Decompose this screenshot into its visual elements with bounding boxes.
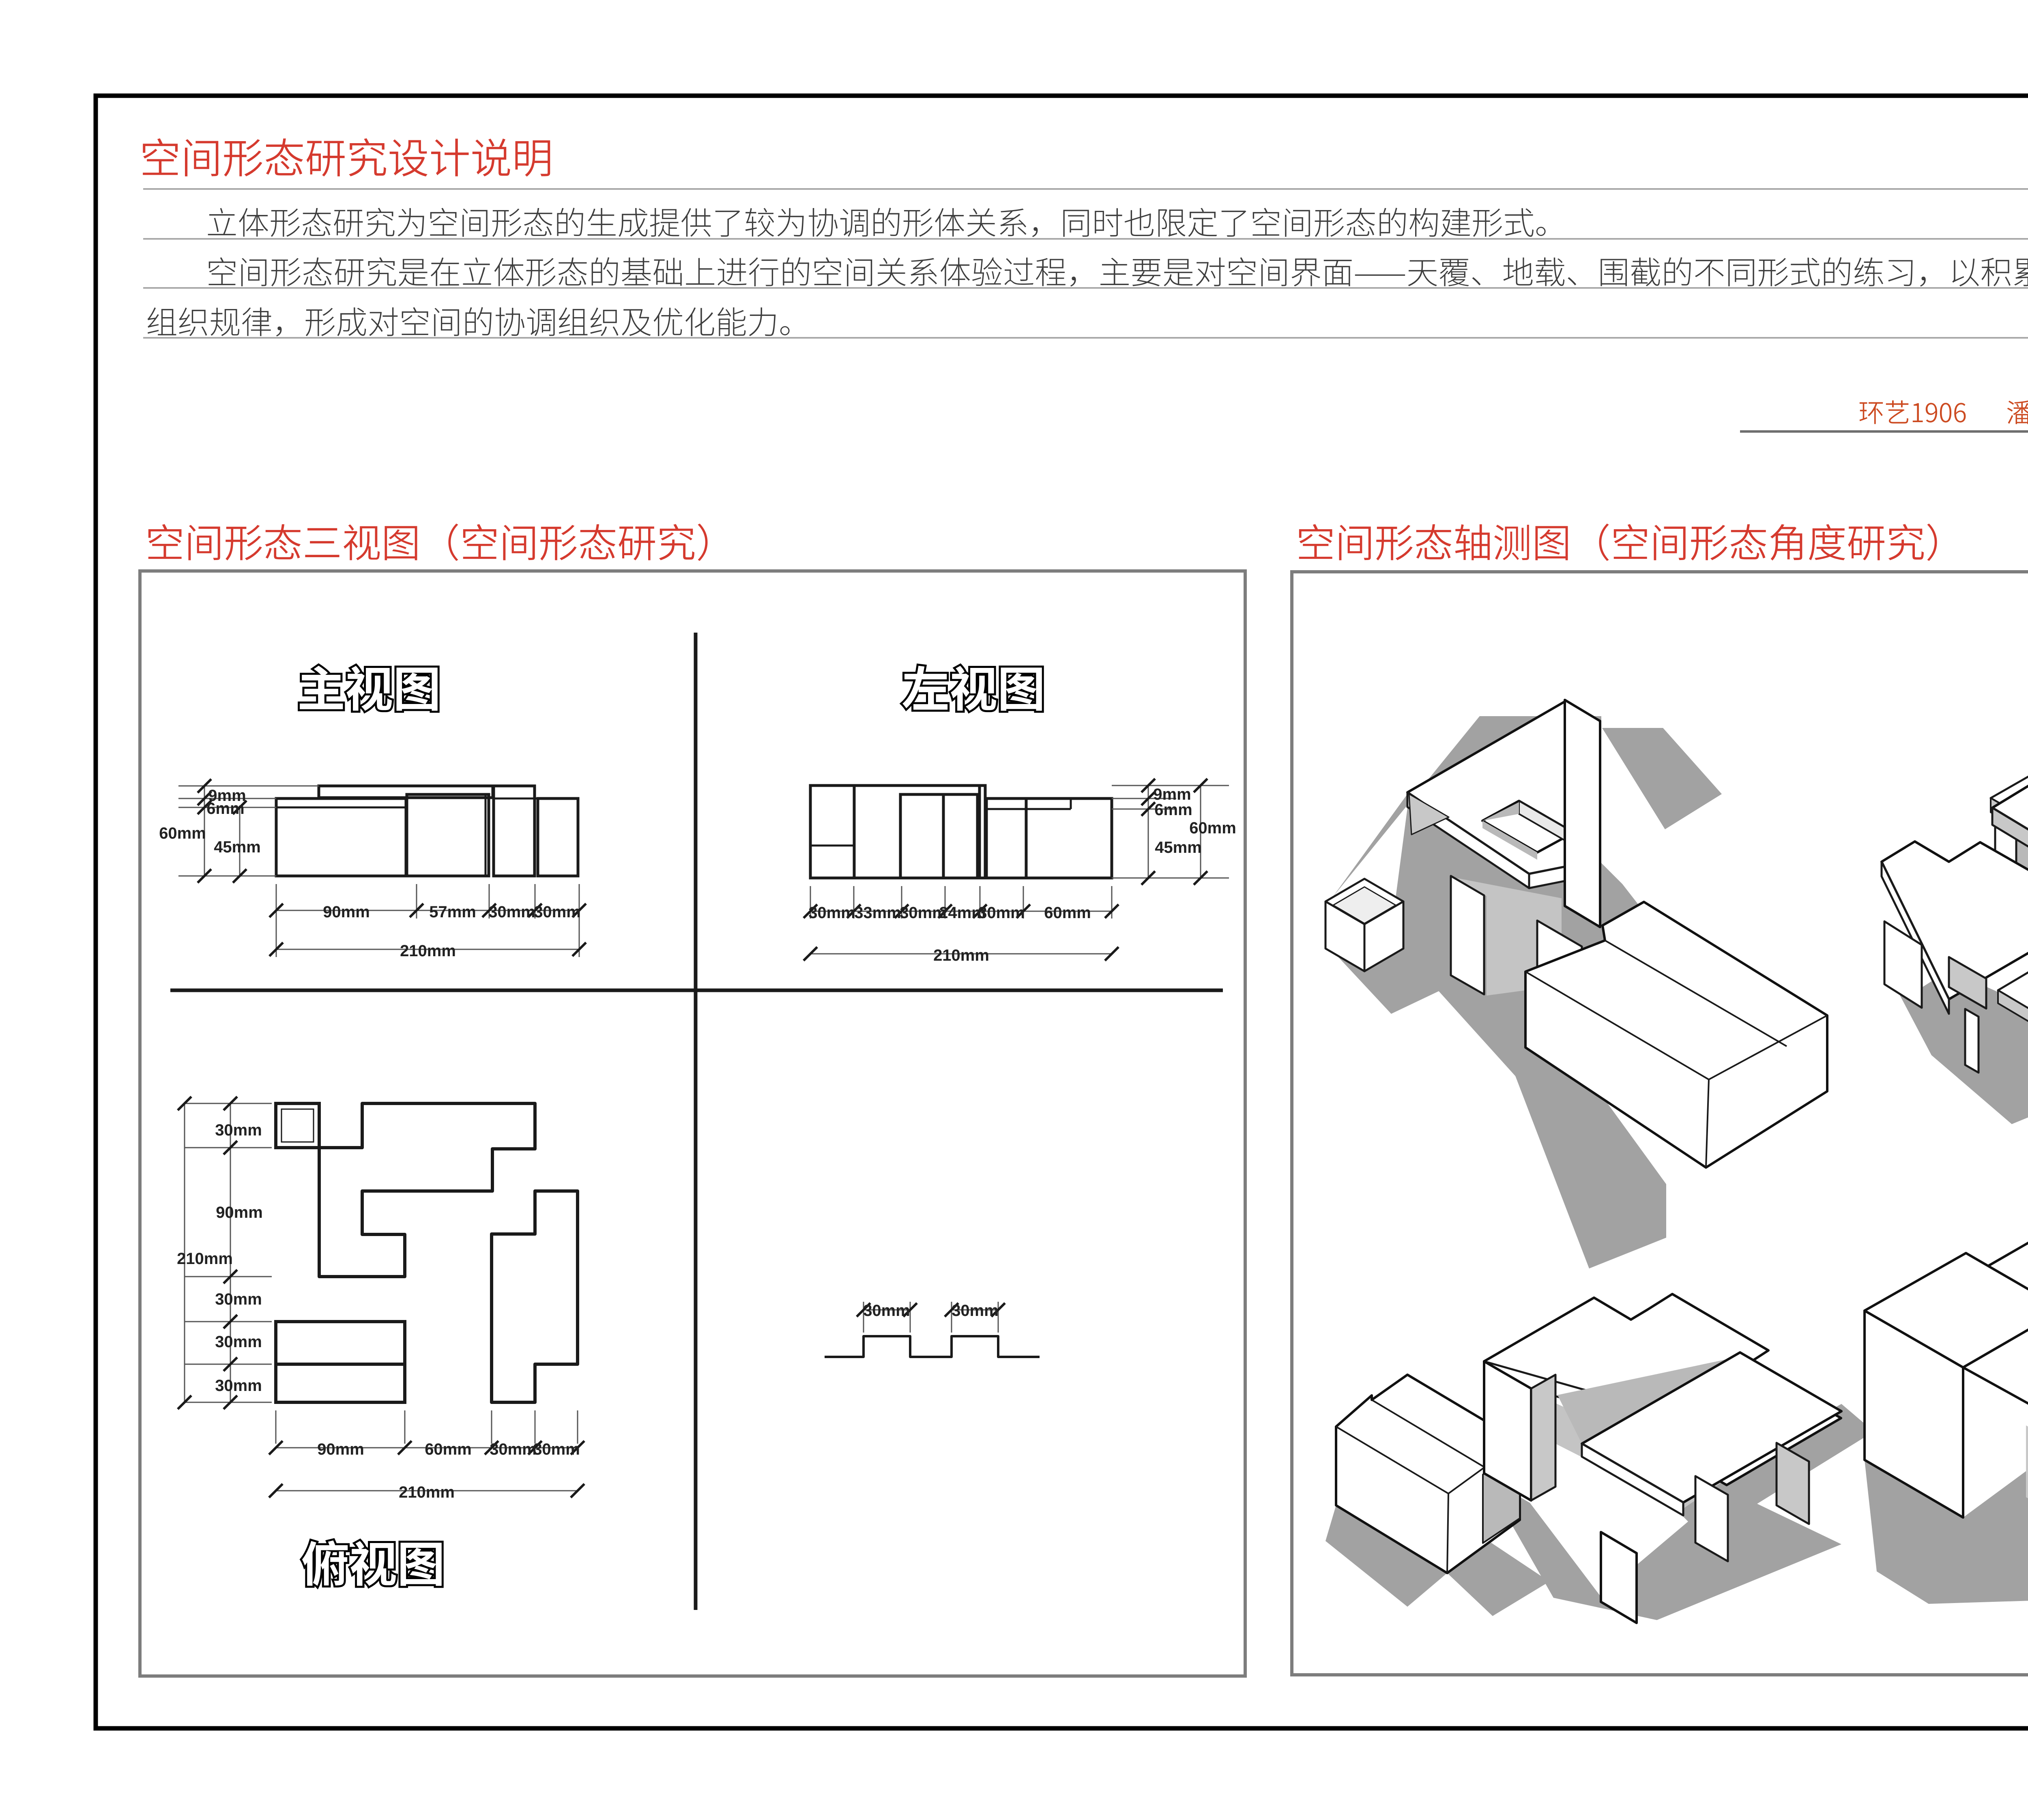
svg-text:左视图: 左视图	[902, 651, 1045, 720]
svg-text:立体形态研究为空间形态的生成提供了较为协调的形体关系，同时也: 立体形态研究为空间形态的生成提供了较为协调的形体关系，同时也限定了空间形态的构建…	[206, 198, 1566, 244]
svg-text:30mm: 30mm	[808, 904, 855, 922]
svg-text:30mm: 30mm	[215, 1290, 262, 1308]
svg-text:6mm: 6mm	[206, 800, 244, 818]
svg-text:6mm: 6mm	[1154, 801, 1192, 819]
svg-text:30mm: 30mm	[490, 1440, 537, 1458]
svg-text:210mm: 210mm	[933, 946, 989, 964]
svg-text:60mm: 60mm	[159, 824, 206, 842]
svg-text:90mm: 90mm	[323, 903, 370, 921]
svg-text:210mm: 210mm	[177, 1250, 233, 1268]
svg-text:30mm: 30mm	[215, 1121, 262, 1139]
svg-text:空间形态三视图（空间形态研究）: 空间形态三视图（空间形态研究）	[145, 511, 735, 569]
svg-text:57mm: 57mm	[429, 903, 476, 921]
svg-text:60mm: 60mm	[425, 1440, 472, 1458]
svg-text:环艺1906: 环艺1906	[1858, 393, 1967, 430]
svg-text:210mm: 210mm	[399, 1483, 455, 1501]
svg-text:30mm: 30mm	[978, 904, 1025, 922]
svg-text:90mm: 90mm	[216, 1204, 263, 1221]
svg-text:210mm: 210mm	[400, 942, 456, 960]
svg-text:空间形态研究是在立体形态的基础上进行的空间关系体验过程，主要: 空间形态研究是在立体形态的基础上进行的空间关系体验过程，主要是对空间界面——天覆…	[206, 248, 2028, 293]
svg-text:30mm: 30mm	[952, 1302, 999, 1320]
svg-text:30mm: 30mm	[533, 1440, 580, 1458]
svg-text:30mm: 30mm	[534, 903, 581, 921]
svg-text:30mm: 30mm	[488, 903, 535, 921]
svg-text:30mm: 30mm	[215, 1333, 262, 1351]
svg-text:45mm: 45mm	[1155, 839, 1202, 856]
svg-text:组织规律，形成对空间的协调组织及优化能力。: 组织规律，形成对空间的协调组织及优化能力。	[146, 298, 810, 343]
svg-text:60mm: 60mm	[1189, 819, 1236, 837]
svg-text:空间形态研究设计说明: 空间形态研究设计说明	[140, 126, 553, 185]
svg-text:主视图: 主视图	[297, 651, 441, 720]
svg-text:45mm: 45mm	[214, 838, 261, 856]
svg-text:空间形态轴测图（空间形态角度研究）: 空间形态轴测图（空间形态角度研究）	[1296, 511, 1965, 569]
svg-text:33mm: 33mm	[854, 904, 901, 922]
svg-text:30mm: 30mm	[215, 1377, 262, 1395]
svg-text:90mm: 90mm	[317, 1440, 364, 1458]
svg-text:60mm: 60mm	[1044, 904, 1091, 922]
svg-text:俯视图: 俯视图	[301, 1526, 445, 1595]
svg-text:30mm: 30mm	[863, 1302, 910, 1320]
svg-text:潘雅轩: 潘雅轩	[2006, 393, 2028, 430]
